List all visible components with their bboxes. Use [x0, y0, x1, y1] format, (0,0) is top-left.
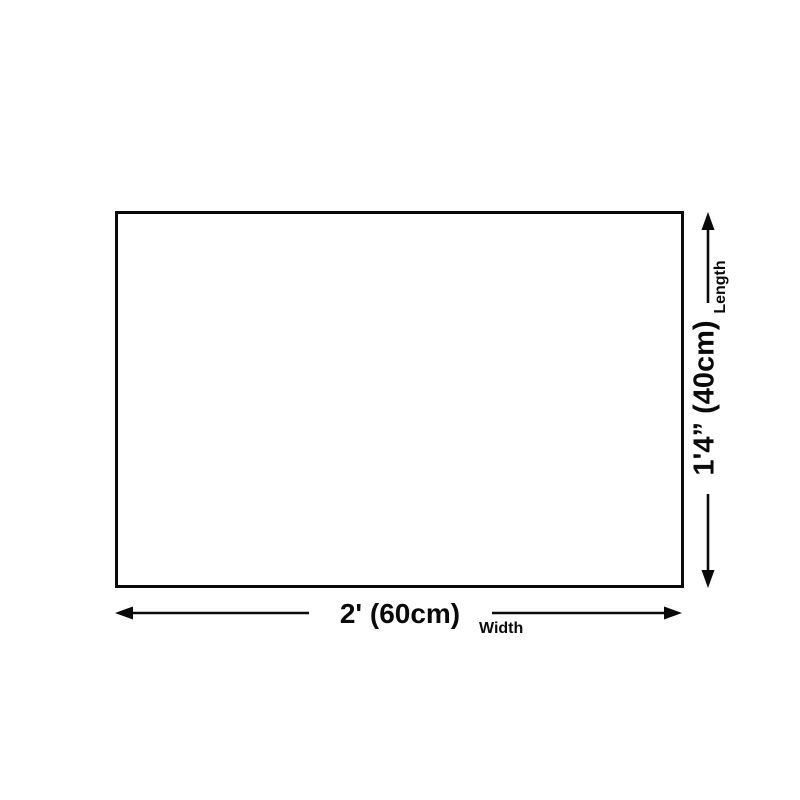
width-label: Width	[479, 620, 523, 638]
length-label: Length	[712, 260, 730, 313]
length-value: 1'4” (40cm)	[689, 320, 722, 475]
size-diagram: 1'4” (40cm) Length 2' (60cm) Width	[0, 0, 800, 800]
width-arrow-left-icon	[115, 607, 309, 620]
length-arrow-down-icon	[702, 494, 715, 588]
width-arrow-right-icon	[492, 607, 682, 620]
width-value: 2' (60cm)	[340, 598, 460, 630]
product-outline	[115, 211, 684, 588]
